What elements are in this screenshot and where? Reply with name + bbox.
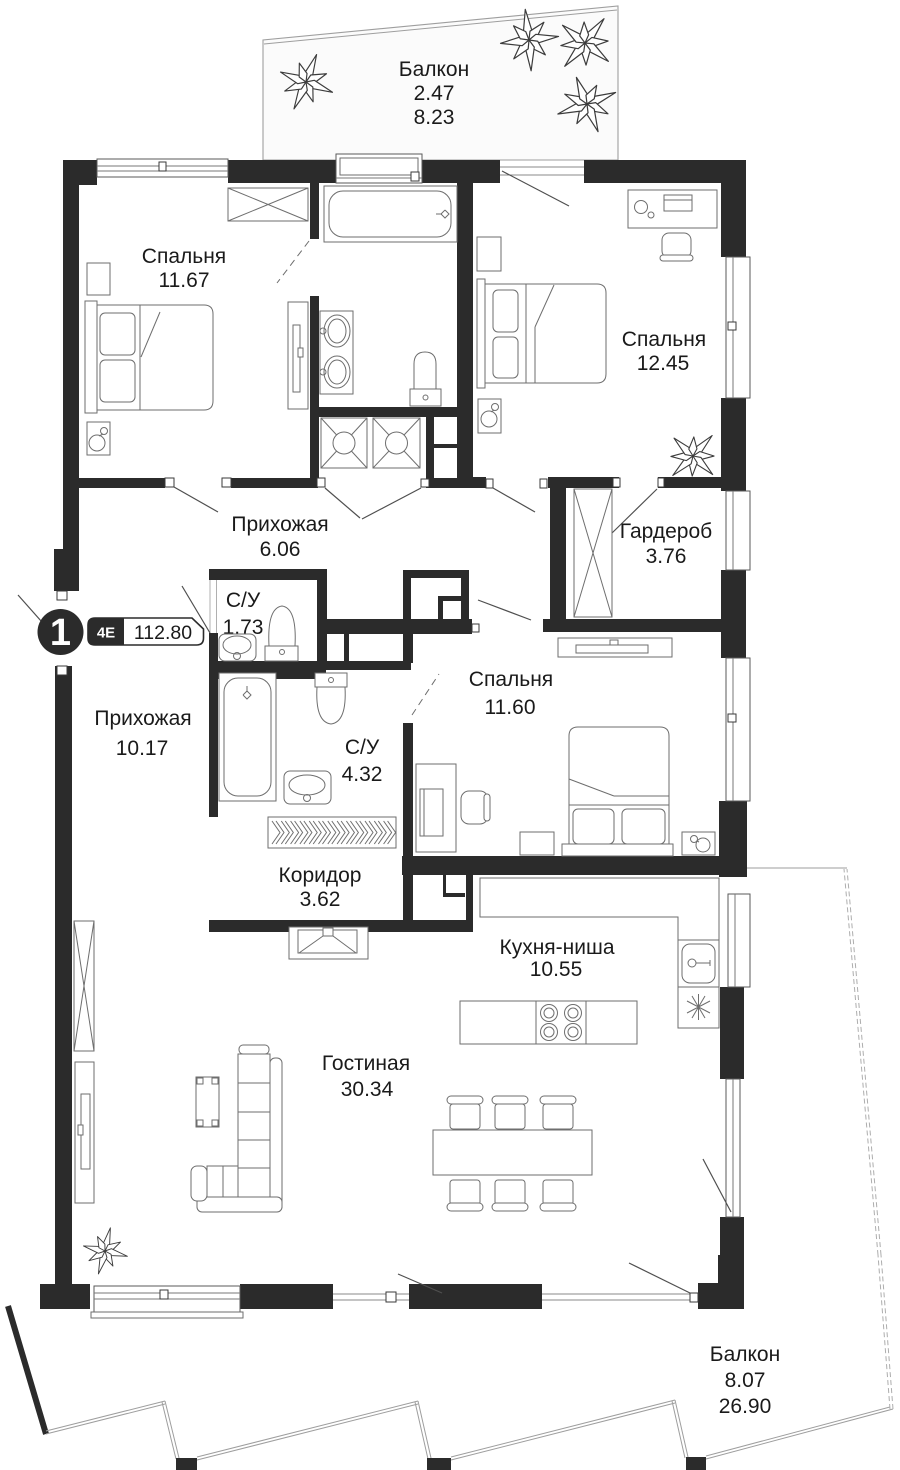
svg-text:8.07: 8.07 — [725, 1369, 766, 1392]
svg-text:Балкон: Балкон — [710, 1343, 780, 1366]
svg-text:3.62: 3.62 — [300, 888, 341, 911]
svg-text:4.32: 4.32 — [342, 763, 383, 786]
svg-text:Спальня: Спальня — [142, 245, 226, 268]
svg-text:2.47: 2.47 — [414, 82, 455, 105]
svg-text:4E: 4E — [97, 625, 115, 642]
svg-text:8.23: 8.23 — [414, 106, 455, 129]
svg-text:Коридор: Коридор — [279, 864, 362, 887]
svg-text:10.17: 10.17 — [116, 737, 169, 760]
svg-text:Балкон: Балкон — [399, 58, 469, 81]
svg-text:3.76: 3.76 — [646, 545, 687, 568]
svg-text:С/У: С/У — [345, 736, 380, 759]
svg-text:11.67: 11.67 — [159, 269, 210, 292]
svg-text:10.55: 10.55 — [530, 958, 583, 981]
svg-text:Гостиная: Гостиная — [322, 1052, 410, 1075]
svg-text:Гардероб: Гардероб — [620, 520, 712, 543]
svg-text:1: 1 — [50, 612, 71, 654]
svg-text:6.06: 6.06 — [260, 538, 301, 561]
svg-text:112.80: 112.80 — [134, 622, 192, 644]
svg-text:С/У: С/У — [226, 589, 261, 612]
svg-text:11.60: 11.60 — [485, 696, 536, 719]
svg-text:26.90: 26.90 — [719, 1395, 772, 1418]
svg-text:Спальня: Спальня — [622, 328, 706, 351]
svg-text:Прихожая: Прихожая — [94, 707, 191, 730]
svg-text:Кухня-ниша: Кухня-ниша — [499, 936, 614, 959]
svg-text:Спальня: Спальня — [469, 668, 553, 691]
svg-text:Прихожая: Прихожая — [231, 513, 328, 536]
svg-text:12.45: 12.45 — [637, 352, 690, 375]
svg-text:30.34: 30.34 — [341, 1078, 394, 1101]
